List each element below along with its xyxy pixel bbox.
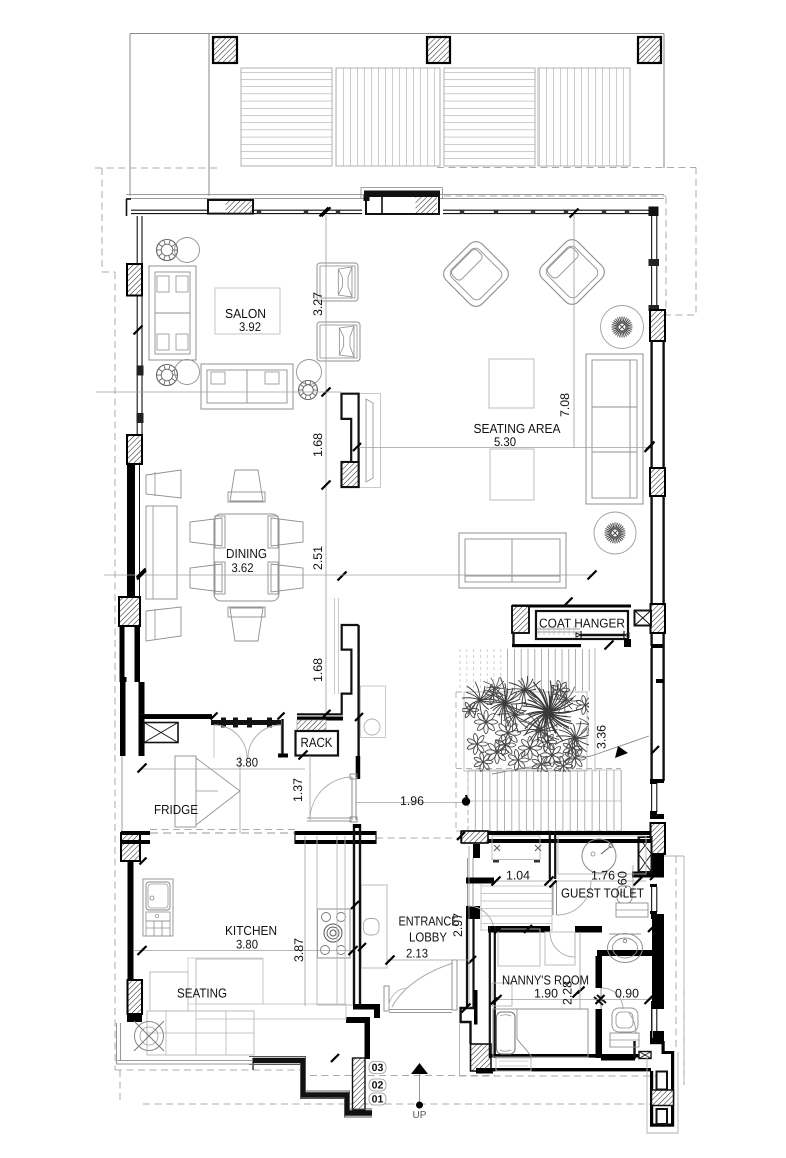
svg-text:0.90: 0.90 xyxy=(615,987,639,1001)
svg-text:1.04: 1.04 xyxy=(506,869,530,883)
svg-text:SEATING AREA: SEATING AREA xyxy=(474,421,561,436)
svg-text:1.96: 1.96 xyxy=(400,794,424,808)
svg-text:2.51: 2.51 xyxy=(311,546,325,570)
svg-text:COAT HANGER: COAT HANGER xyxy=(539,616,625,631)
svg-text:01: 01 xyxy=(372,1094,384,1106)
svg-text:KITCHEN: KITCHEN xyxy=(225,923,277,938)
svg-text:RACK: RACK xyxy=(301,735,333,750)
svg-text:3.62: 3.62 xyxy=(232,561,254,575)
svg-text:DINING: DINING xyxy=(226,546,267,561)
svg-text:02: 02 xyxy=(372,1080,384,1092)
svg-text:ENTRANCE: ENTRANCE xyxy=(399,914,459,929)
svg-text:3.80: 3.80 xyxy=(236,938,258,952)
svg-text:1.37: 1.37 xyxy=(291,778,305,802)
svg-text:1.68: 1.68 xyxy=(311,658,325,682)
svg-text:1.68: 1.68 xyxy=(311,433,325,457)
svg-text:FRIDGE: FRIDGE xyxy=(154,802,198,817)
svg-text:GUEST TOILET: GUEST TOILET xyxy=(561,886,644,901)
svg-text:2.13: 2.13 xyxy=(406,947,428,961)
svg-text:2.97: 2.97 xyxy=(451,913,465,937)
svg-text:SALON: SALON xyxy=(225,306,266,321)
svg-text:LOBBY: LOBBY xyxy=(409,930,447,945)
svg-text:3.27: 3.27 xyxy=(311,292,325,316)
svg-text:1.90: 1.90 xyxy=(534,987,558,1001)
svg-text:1.76: 1.76 xyxy=(591,869,615,883)
svg-text:2.28: 2.28 xyxy=(561,981,575,1005)
svg-text:3.36: 3.36 xyxy=(595,725,609,749)
svg-text:7.08: 7.08 xyxy=(558,393,572,417)
svg-text:SEATING: SEATING xyxy=(177,986,227,1001)
svg-text:3.92: 3.92 xyxy=(239,320,261,334)
svg-text:NANNY'S ROOM: NANNY'S ROOM xyxy=(502,973,589,988)
svg-text:5.30: 5.30 xyxy=(494,435,516,449)
svg-text:3.87: 3.87 xyxy=(292,938,306,962)
svg-text:3.80: 3.80 xyxy=(236,756,258,770)
svg-text:03: 03 xyxy=(372,1062,384,1074)
svg-text:UP: UP xyxy=(413,1110,427,1121)
